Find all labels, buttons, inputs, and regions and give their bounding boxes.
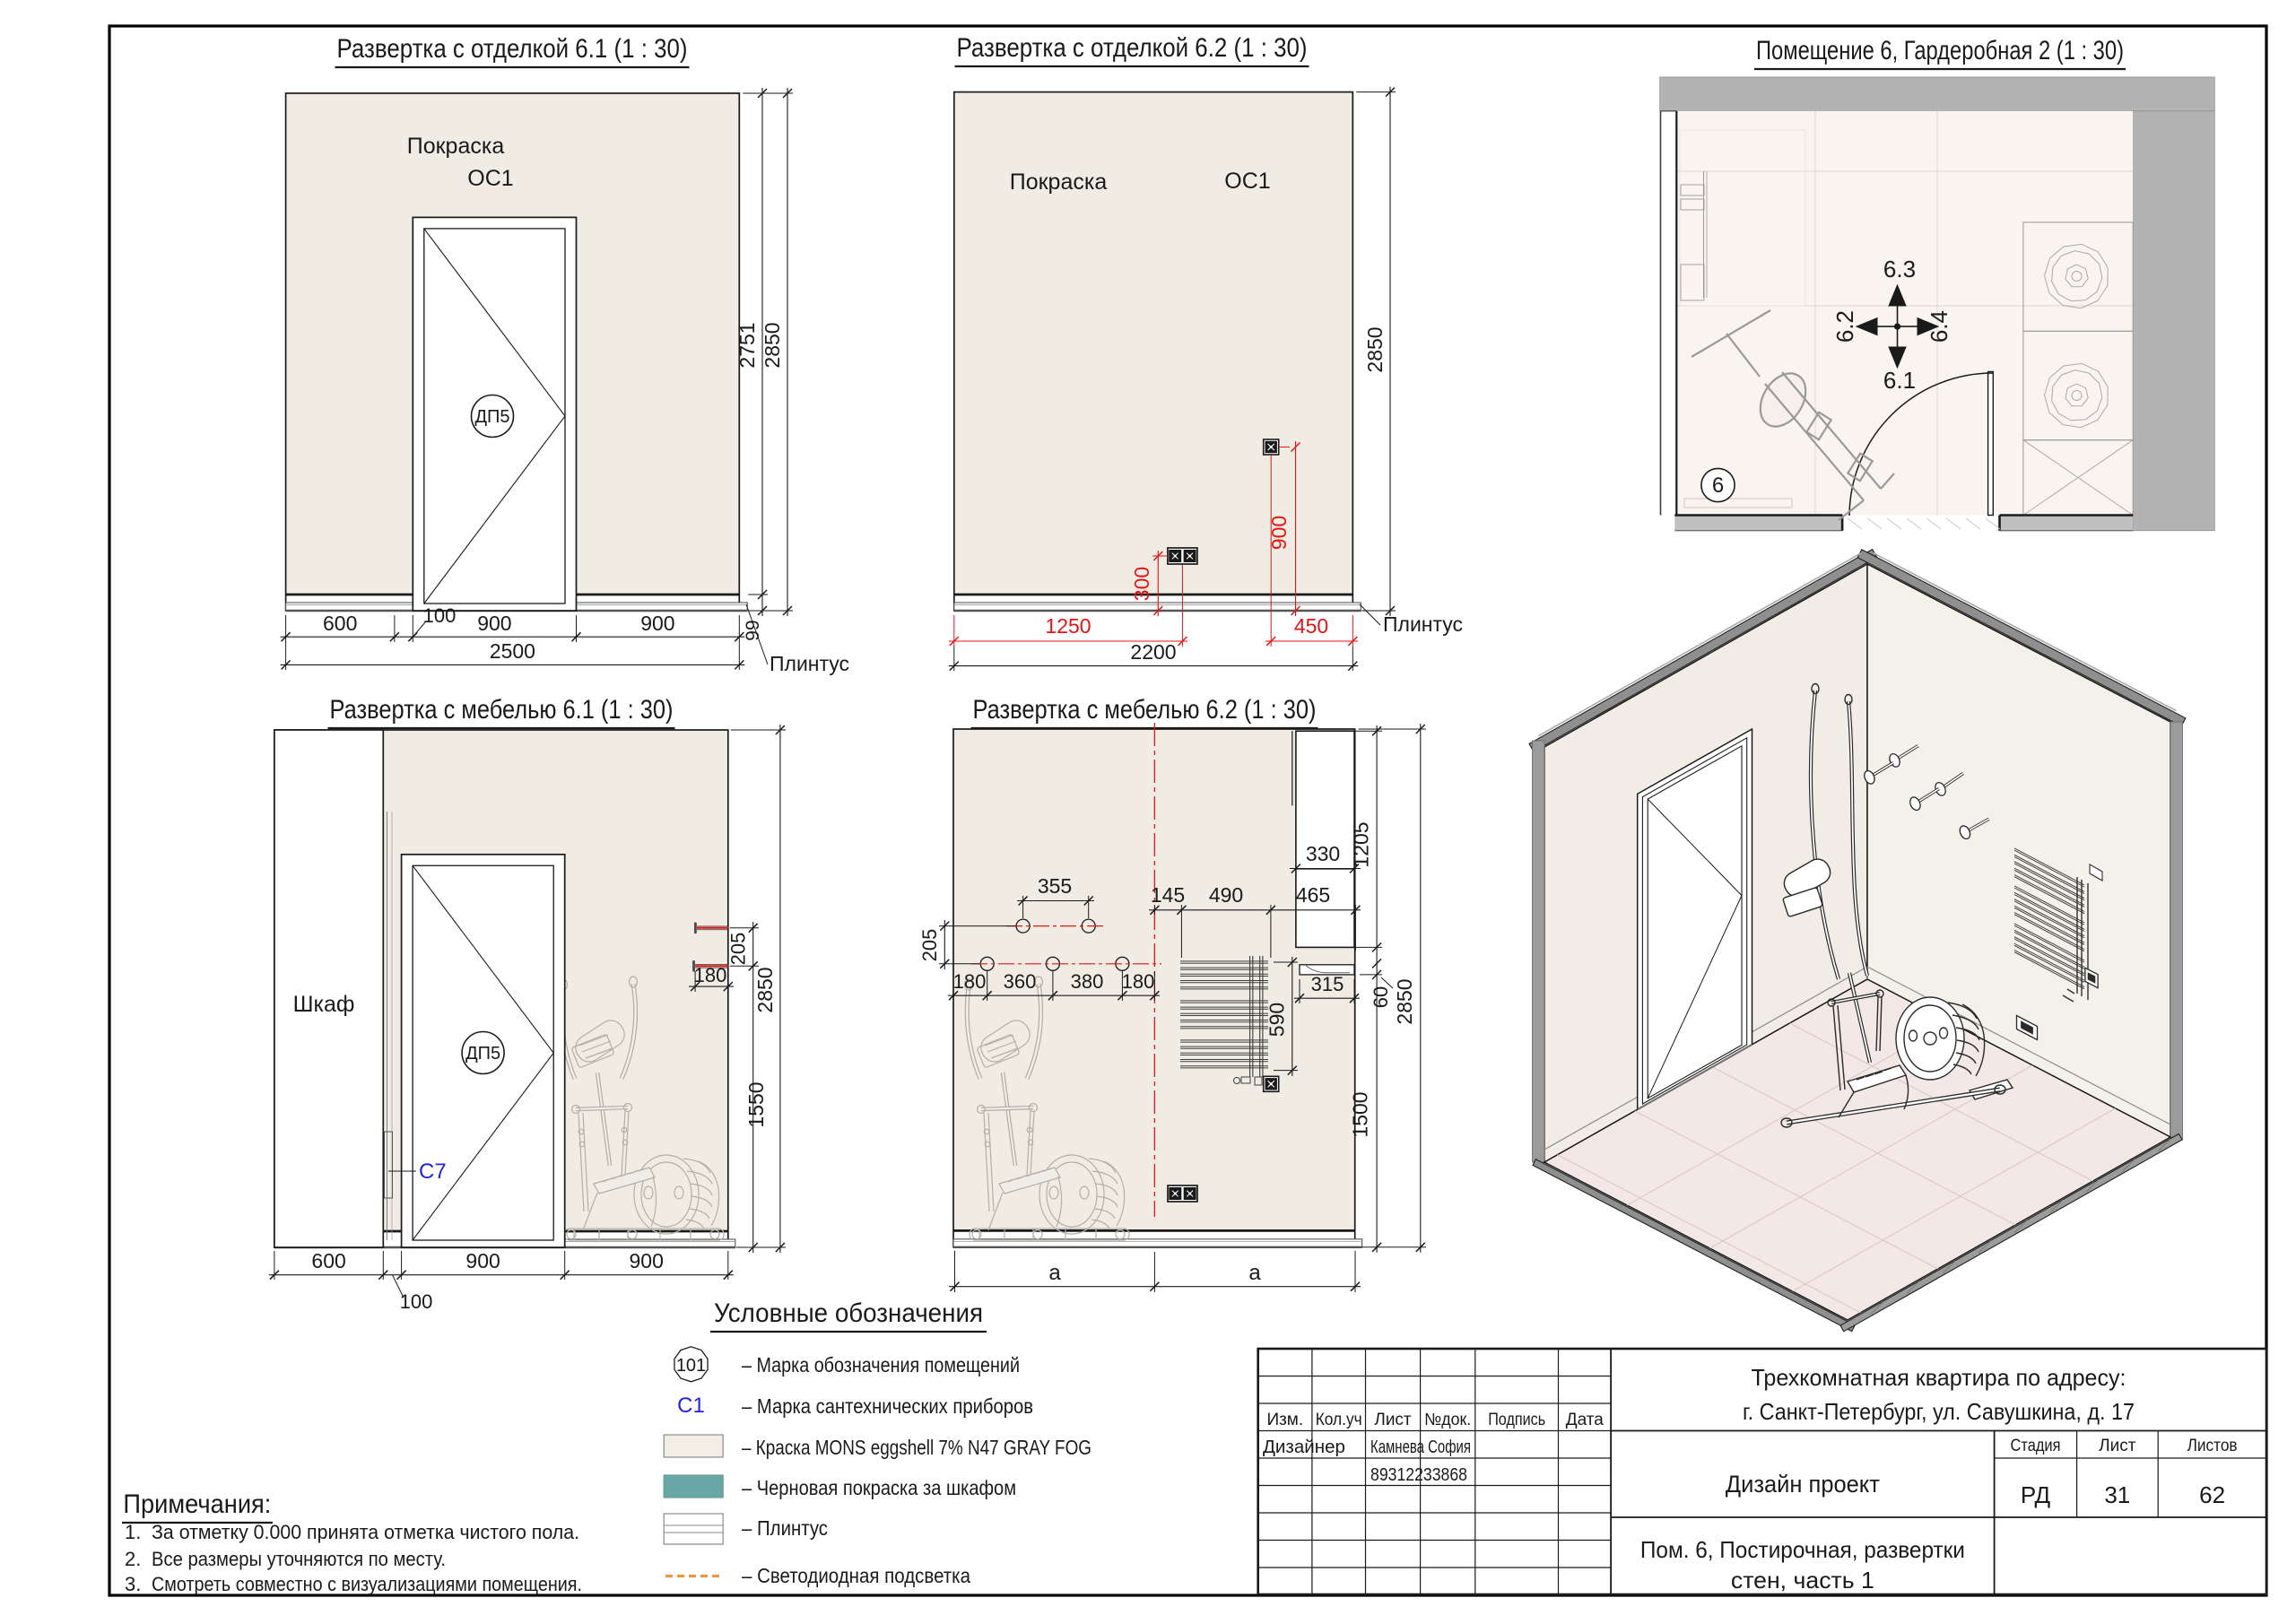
svg-text:Шкаф: Шкаф (293, 992, 355, 1017)
svg-text:г. Санкт-Петербург, ул. Савушк: г. Санкт-Петербург, ул. Савушкина, д. 17 (1743, 1398, 2135, 1425)
svg-text:180: 180 (953, 970, 987, 993)
svg-text:– Черновая покраска за шкафом: – Черновая покраска за шкафом (742, 1476, 1016, 1499)
svg-text:Камнева София: Камнева София (1370, 1437, 1471, 1457)
svg-text:100: 100 (400, 1290, 433, 1313)
svg-text:ОС1: ОС1 (467, 166, 513, 191)
svg-text:6.3: 6.3 (1883, 256, 1916, 282)
svg-text:Трехкомнатная квартира по адре: Трехкомнатная квартира по адресу: (1752, 1364, 2126, 1391)
svg-text:205: 205 (918, 929, 941, 962)
svg-text:Условные обозначения: Условные обозначения (714, 1298, 983, 1328)
svg-text:За отметку 0.000 принята отмет: За отметку 0.000 принята отметка чистого… (152, 1521, 579, 1543)
svg-text:62: 62 (2199, 1481, 2225, 1508)
svg-text:Развертка с отделкой 6.1 (1 :: Развертка с отделкой 6.1 (1 : 30) (337, 34, 688, 64)
svg-text:Дизайнер: Дизайнер (1263, 1437, 1345, 1457)
svg-text:360: 360 (1004, 970, 1037, 993)
svg-text:Развертка с отделкой 6.2 (1 :: Развертка с отделкой 6.2 (1 : 30) (957, 33, 1308, 63)
svg-text:180: 180 (1122, 970, 1155, 993)
svg-text:900: 900 (630, 1249, 664, 1272)
svg-text:900: 900 (640, 612, 674, 635)
svg-text:Пом. 6, Постирочная, развертки: Пом. 6, Постирочная, развертки (1640, 1536, 1965, 1563)
svg-text:стен, часть 1: стен, часть 1 (1731, 1567, 1874, 1594)
svg-text:Покраска: Покраска (407, 134, 505, 159)
svg-text:6.4: 6.4 (1926, 310, 1952, 343)
svg-text:1550: 1550 (744, 1081, 768, 1127)
svg-text:Лист: Лист (1374, 1411, 1412, 1429)
svg-text:465: 465 (1296, 883, 1330, 907)
svg-text:Помещение 6, Гардеробная 2 (1: Помещение 6, Гардеробная 2 (1 : 30) (1756, 36, 2124, 65)
svg-text:2850: 2850 (1393, 978, 1416, 1024)
svg-text:C7: C7 (419, 1159, 447, 1184)
svg-text:60: 60 (1370, 986, 1392, 1008)
svg-text:Развертка с мебелью 6.1 (1 : 3: Развертка с мебелью 6.1 (1 : 30) (330, 695, 674, 725)
svg-text:600: 600 (311, 1249, 345, 1272)
svg-text:Плинтус: Плинтус (770, 652, 849, 675)
svg-text:Примечания:: Примечания: (123, 1489, 271, 1519)
svg-text:Подпись: Подпись (1488, 1411, 1545, 1429)
svg-text:ДП5: ДП5 (474, 407, 509, 427)
svg-text:1500: 1500 (1349, 1091, 1372, 1137)
svg-text:89312233868: 89312233868 (1370, 1465, 1467, 1485)
svg-text:РД: РД (2021, 1481, 2051, 1508)
svg-text:3.: 3. (125, 1573, 141, 1595)
svg-text:Кол.уч: Кол.уч (1316, 1411, 1362, 1429)
svg-text:300: 300 (1130, 567, 1153, 601)
svg-text:– Краска MONS eggshell 7% N47: – Краска MONS eggshell 7% N47 GRAY FOG (742, 1436, 1091, 1459)
svg-text:– Марка обозначения помещений: – Марка обозначения помещений (742, 1353, 1020, 1376)
svg-text:Дизайн проект: Дизайн проект (1726, 1471, 1880, 1498)
svg-text:900: 900 (465, 1249, 500, 1272)
svg-text:2751: 2751 (735, 322, 759, 368)
svg-text:1205: 1205 (1350, 821, 1373, 867)
svg-text:315: 315 (1311, 973, 1344, 995)
svg-text:– Светодиодная подсветка: – Светодиодная подсветка (742, 1564, 970, 1587)
svg-text:ОС1: ОС1 (1224, 169, 1270, 194)
svg-text:900: 900 (477, 612, 511, 635)
svg-text:Изм.: Изм. (1266, 1411, 1303, 1429)
svg-text:145: 145 (1151, 883, 1185, 907)
svg-text:2850: 2850 (1363, 326, 1387, 372)
svg-text:2500: 2500 (490, 639, 535, 663)
svg-text:Плинтус: Плинтус (1383, 612, 1463, 636)
svg-text:6.1: 6.1 (1883, 367, 1916, 394)
svg-text:180: 180 (694, 964, 727, 986)
svg-text:Стадия: Стадия (2011, 1437, 2061, 1455)
svg-text:2850: 2850 (753, 967, 777, 1012)
svg-text:№док.: №док. (1424, 1411, 1471, 1429)
svg-text:330: 330 (1306, 842, 1340, 865)
svg-text:590: 590 (1265, 1003, 1289, 1037)
svg-text:1.: 1. (125, 1521, 141, 1543)
svg-text:2.: 2. (125, 1548, 141, 1570)
svg-text:Дата: Дата (1566, 1411, 1605, 1429)
svg-text:C1: C1 (677, 1394, 705, 1418)
svg-text:ДП5: ДП5 (465, 1044, 500, 1064)
svg-text:Лист: Лист (2099, 1437, 2136, 1455)
svg-text:– Марка сантехнических приборо: – Марка сантехнических приборов (742, 1394, 1033, 1418)
svg-text:a: a (1248, 1261, 1261, 1285)
svg-text:600: 600 (323, 612, 357, 635)
svg-text:– Плинтус: – Плинтус (742, 1516, 828, 1540)
svg-text:450: 450 (1294, 614, 1328, 638)
svg-text:101: 101 (676, 1356, 706, 1376)
svg-text:205: 205 (727, 933, 750, 966)
svg-text:a: a (1048, 1261, 1061, 1285)
svg-text:1250: 1250 (1045, 614, 1091, 638)
svg-text:6: 6 (1712, 473, 1724, 498)
svg-text:380: 380 (1071, 970, 1104, 993)
svg-text:Смотреть совместно с визуализа: Смотреть совместно с визуализациями поме… (152, 1573, 582, 1595)
svg-text:31: 31 (2104, 1481, 2130, 1508)
svg-text:6.2: 6.2 (1831, 310, 1858, 343)
svg-text:355: 355 (1038, 874, 1072, 898)
svg-text:Развертка с мебелью 6.2 (1 : 3: Развертка с мебелью 6.2 (1 : 30) (973, 695, 1317, 725)
svg-text:2200: 2200 (1130, 640, 1176, 664)
svg-text:490: 490 (1209, 883, 1243, 907)
svg-text:2850: 2850 (761, 322, 784, 368)
svg-text:Листов: Листов (2187, 1437, 2238, 1455)
svg-text:Все размеры уточняются по мест: Все размеры уточняются по месту. (152, 1548, 446, 1570)
svg-text:100: 100 (423, 604, 457, 627)
svg-text:Покраска: Покраска (1010, 169, 1108, 195)
